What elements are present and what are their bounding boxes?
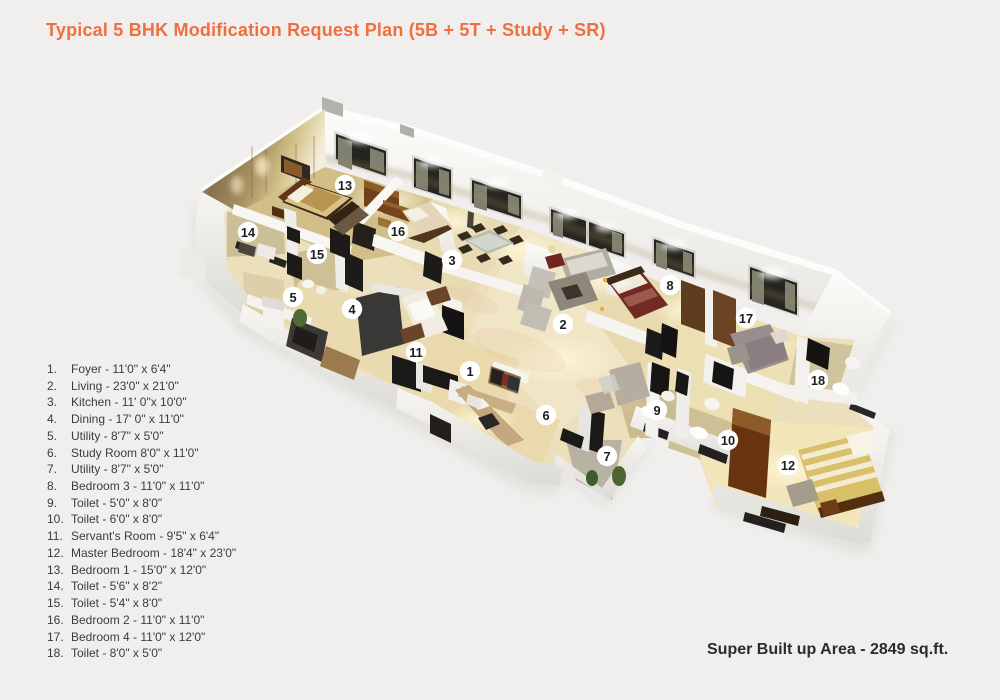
svg-text:4: 4: [348, 302, 356, 317]
svg-text:5: 5: [289, 290, 296, 305]
svg-text:14: 14: [241, 225, 256, 240]
svg-text:1: 1: [466, 364, 473, 379]
svg-text:6: 6: [542, 408, 549, 423]
svg-text:16: 16: [391, 224, 405, 239]
svg-text:15: 15: [310, 247, 324, 262]
svg-text:7: 7: [603, 449, 610, 464]
svg-text:11: 11: [409, 345, 423, 360]
svg-text:13: 13: [338, 178, 352, 193]
svg-text:3: 3: [448, 253, 455, 268]
svg-text:18: 18: [811, 373, 825, 388]
svg-text:10: 10: [721, 433, 735, 448]
svg-text:12: 12: [781, 458, 795, 473]
svg-text:2: 2: [559, 317, 566, 332]
svg-text:9: 9: [653, 403, 660, 418]
svg-text:8: 8: [666, 278, 673, 293]
svg-text:17: 17: [739, 311, 753, 326]
